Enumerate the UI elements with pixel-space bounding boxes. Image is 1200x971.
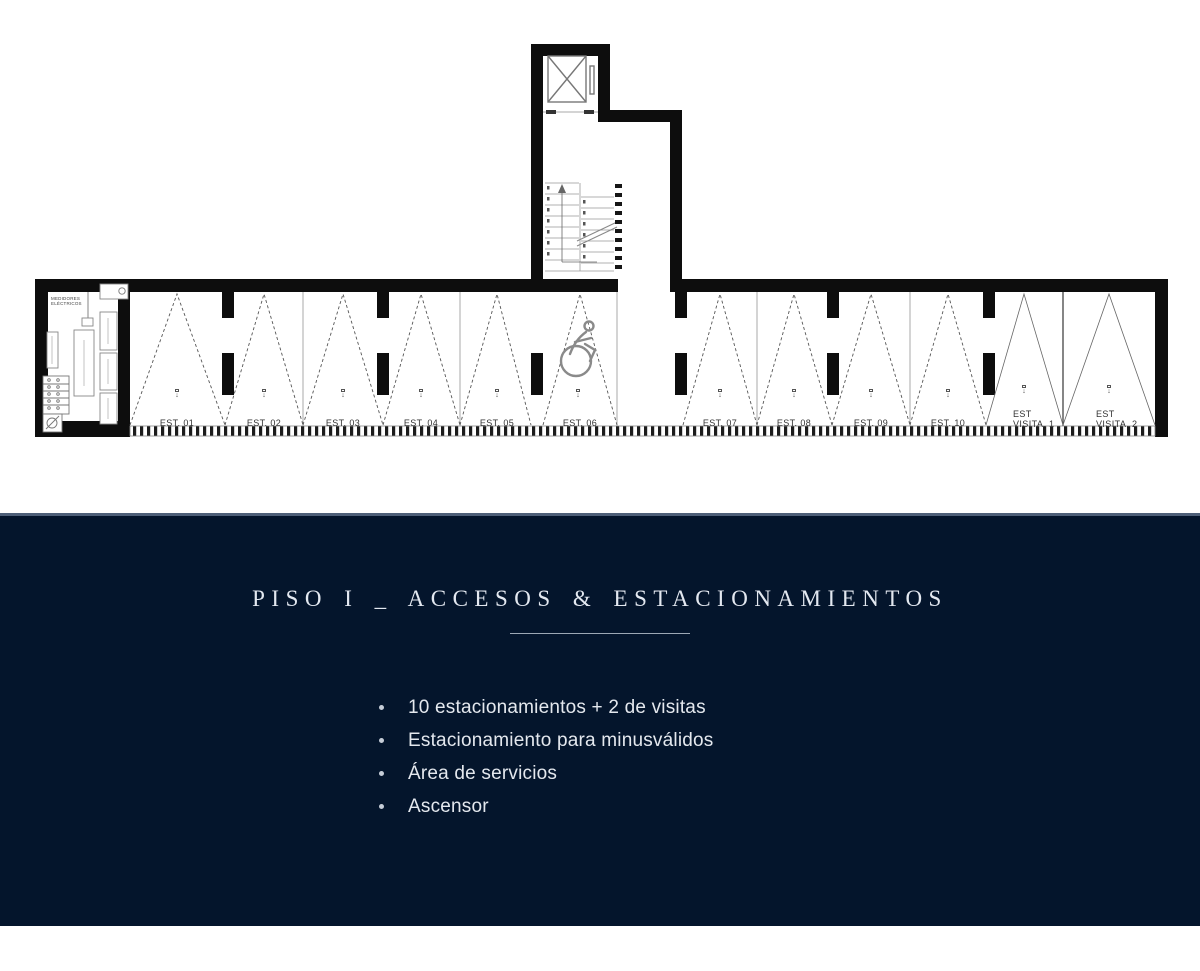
stall-marker: ↓	[259, 389, 269, 399]
bullet-icon	[379, 804, 384, 809]
stall-marker: ↓	[1019, 385, 1029, 395]
stall-marker: ↓	[416, 389, 426, 399]
list-item: 10 estacionamientos + 2 de visitas	[377, 696, 713, 720]
stall-label-est-01: EST. 01	[160, 419, 194, 429]
parking-stall-lines	[130, 294, 1155, 425]
service-room-fixtures	[43, 284, 128, 432]
bullet-icon	[379, 705, 384, 710]
title-underline	[510, 633, 690, 634]
list-item: Ascensor	[377, 795, 713, 819]
feature-list: 10 estacionamientos + 2 de visitas Estac…	[377, 696, 713, 828]
service-room-label: MEDIDORES ELÉCTRICOS	[51, 296, 82, 306]
bullet-icon	[379, 771, 384, 776]
floor-plan: MEDIDORES ELÉCTRICOS EST. 01 EST. 02 EST…	[0, 0, 1200, 513]
stall-marker: ↓	[1104, 385, 1114, 395]
list-item: Área de servicios	[377, 762, 713, 786]
list-item-text: Estacionamiento para minusválidos	[408, 730, 713, 751]
meter-bank	[43, 376, 69, 414]
stall-marker: ↓	[943, 389, 953, 399]
wheelchair-accessible-icon	[561, 322, 595, 377]
stall-label-est-02: EST. 02	[247, 419, 281, 429]
stairs	[545, 183, 622, 271]
page-title: PISO I _ ACCESOS & ESTACIONAMIENTOS	[0, 585, 1200, 613]
stall-marker: ↓	[492, 389, 502, 399]
stall-label-est-10: EST. 10	[931, 419, 965, 429]
stall-label-est-06: EST. 06	[563, 419, 597, 429]
stall-label-est-05: EST. 05	[480, 419, 514, 429]
stall-marker: ↓	[715, 389, 725, 399]
stall-label-est-09: EST. 09	[854, 419, 888, 429]
list-item-text: 10 estacionamientos + 2 de visitas	[408, 697, 706, 718]
slide: MEDIDORES ELÉCTRICOS EST. 01 EST. 02 EST…	[0, 0, 1200, 971]
elevator-shaft-x-icon	[543, 56, 598, 114]
list-item-text: Área de servicios	[408, 763, 557, 784]
list-item-text: Ascensor	[408, 796, 489, 817]
stall-label-est-visita-1: EST VISITA. 1	[1013, 410, 1054, 429]
stair-wall-hatch	[615, 184, 622, 269]
stall-marker: ↓	[172, 389, 182, 399]
stall-label-est-03: EST. 03	[326, 419, 360, 429]
walls-group	[35, 44, 1168, 437]
stall-marker: ↓	[789, 389, 799, 399]
stall-marker: ↓	[338, 389, 348, 399]
stall-marker: ↓	[573, 389, 583, 399]
stall-marker: ↓	[866, 389, 876, 399]
stall-label-est-visita-2: EST VISITA. 2	[1096, 410, 1137, 429]
info-panel: PISO I _ ACCESOS & ESTACIONAMIENTOS 10 e…	[0, 513, 1200, 926]
stall-label-est-07: EST. 07	[703, 419, 737, 429]
curb-hatch-strip	[130, 426, 1155, 436]
stairs-up-arrow-icon	[558, 184, 597, 262]
list-item: Estacionamiento para minusválidos	[377, 729, 713, 753]
no-entry-icon	[43, 414, 62, 432]
stall-label-est-08: EST. 08	[777, 419, 811, 429]
bullet-icon	[379, 738, 384, 743]
stall-label-est-04: EST. 04	[404, 419, 438, 429]
